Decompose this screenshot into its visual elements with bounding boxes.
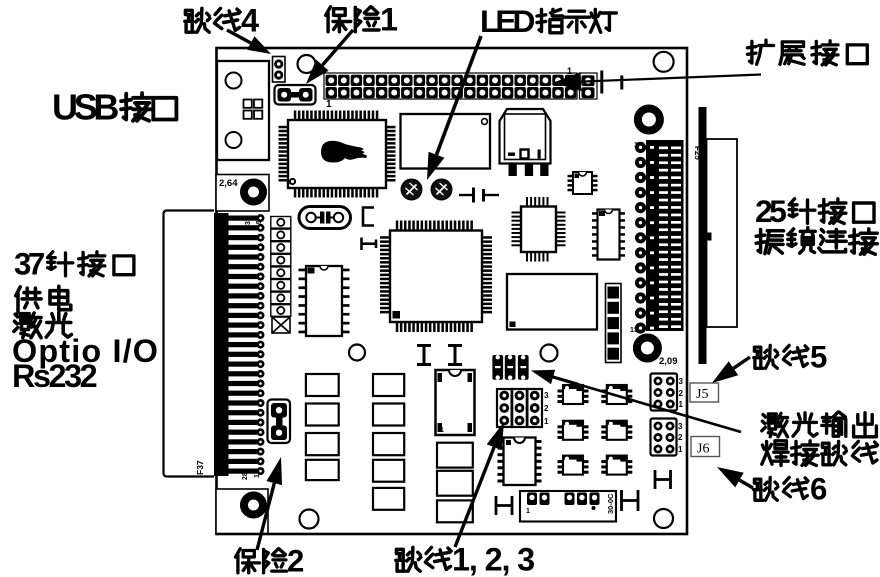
svg-text:LED: LED: [480, 3, 536, 39]
svg-text:30-0C: 30-0C: [606, 493, 615, 514]
svg-text:J5: J5: [696, 387, 708, 402]
svg-text:1: 1: [526, 508, 530, 515]
svg-text:2: 2: [287, 544, 304, 577]
svg-text:1: 1: [567, 66, 572, 76]
svg-text:J6: J6: [697, 442, 709, 457]
svg-text:1: 1: [544, 417, 549, 426]
svg-text:2: 2: [679, 389, 684, 398]
svg-text:1: 1: [678, 445, 683, 454]
svg-text:28: 28: [242, 472, 249, 480]
svg-text:Rs232: Rs232: [12, 358, 98, 394]
svg-text:5: 5: [810, 340, 827, 375]
svg-text:1: 1: [380, 2, 398, 38]
svg-text:1: 1: [634, 142, 638, 149]
svg-text:6: 6: [810, 472, 827, 507]
svg-text:2: 2: [544, 404, 549, 413]
svg-text:25: 25: [755, 193, 787, 229]
svg-text:2,09: 2,09: [659, 356, 678, 367]
svg-text:1: 1: [326, 99, 332, 110]
svg-text:F37: F37: [195, 460, 205, 475]
svg-text:37: 37: [14, 247, 45, 282]
svg-text:USB: USB: [52, 87, 119, 128]
svg-text:13: 13: [630, 327, 638, 334]
svg-text:37: 37: [245, 217, 252, 225]
svg-text:1: 1: [679, 400, 684, 409]
svg-text:1, 2, 3: 1, 2, 3: [452, 542, 535, 577]
svg-text:2: 2: [678, 433, 683, 442]
svg-text:3: 3: [544, 391, 549, 400]
svg-text:1: 1: [440, 427, 444, 434]
svg-text:3: 3: [679, 377, 684, 386]
svg-text:3: 3: [678, 422, 683, 431]
svg-text:4: 4: [241, 3, 259, 39]
svg-text:F25: F25: [693, 146, 702, 160]
svg-text:2,64: 2,64: [219, 178, 238, 189]
